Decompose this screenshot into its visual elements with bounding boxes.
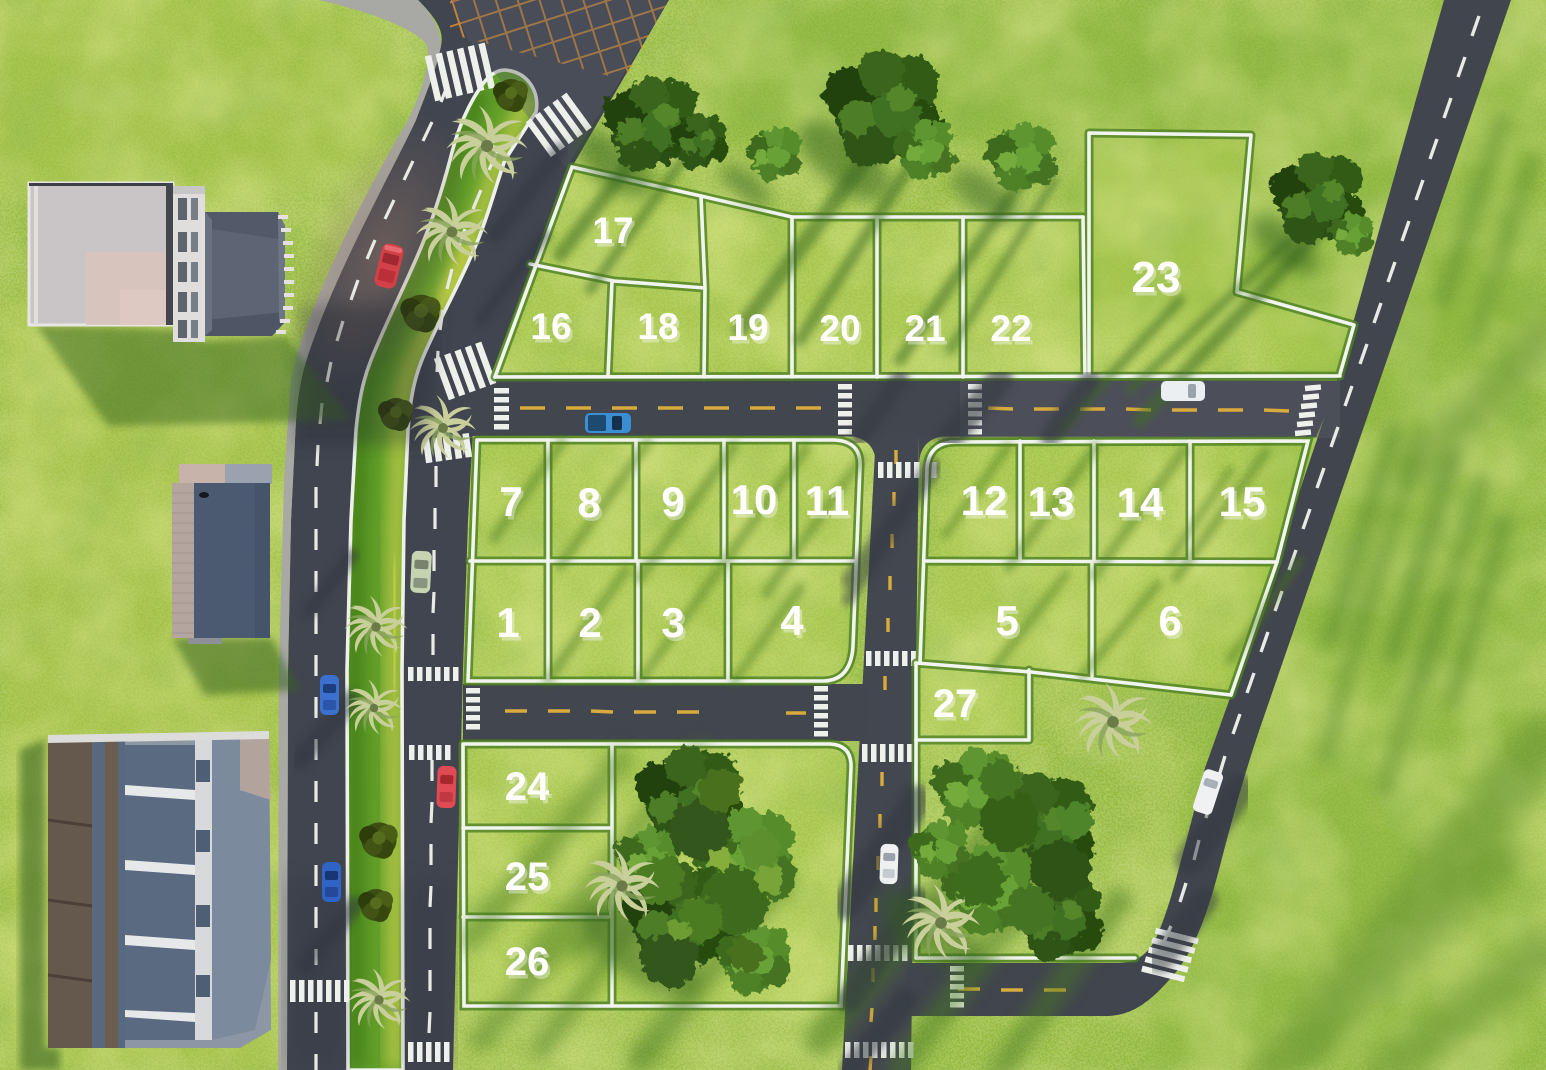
svg-text:7: 7	[499, 478, 522, 525]
svg-text:21: 21	[904, 308, 945, 349]
svg-text:16: 16	[530, 306, 571, 347]
svg-text:4: 4	[780, 597, 804, 644]
svg-text:13: 13	[1028, 478, 1075, 525]
svg-text:26: 26	[505, 940, 550, 984]
svg-text:2: 2	[578, 599, 601, 646]
svg-text:18: 18	[637, 306, 678, 347]
svg-text:19: 19	[727, 307, 768, 348]
svg-text:8: 8	[577, 479, 600, 526]
svg-text:17: 17	[592, 210, 633, 251]
svg-text:5: 5	[995, 597, 1018, 644]
svg-text:6: 6	[1158, 597, 1181, 644]
svg-text:24: 24	[505, 765, 550, 809]
svg-text:14: 14	[1117, 479, 1164, 526]
svg-text:20: 20	[819, 308, 860, 349]
svg-text:3: 3	[661, 599, 684, 646]
svg-text:27: 27	[933, 682, 978, 726]
svg-text:11: 11	[805, 477, 849, 524]
svg-text:15: 15	[1219, 478, 1266, 525]
svg-text:9: 9	[661, 478, 684, 525]
svg-text:25: 25	[505, 855, 550, 899]
svg-text:22: 22	[990, 308, 1031, 349]
svg-text:12: 12	[961, 477, 1008, 524]
svg-text:23: 23	[1132, 253, 1181, 302]
svg-text:10: 10	[731, 476, 778, 523]
svg-text:1: 1	[496, 599, 519, 646]
